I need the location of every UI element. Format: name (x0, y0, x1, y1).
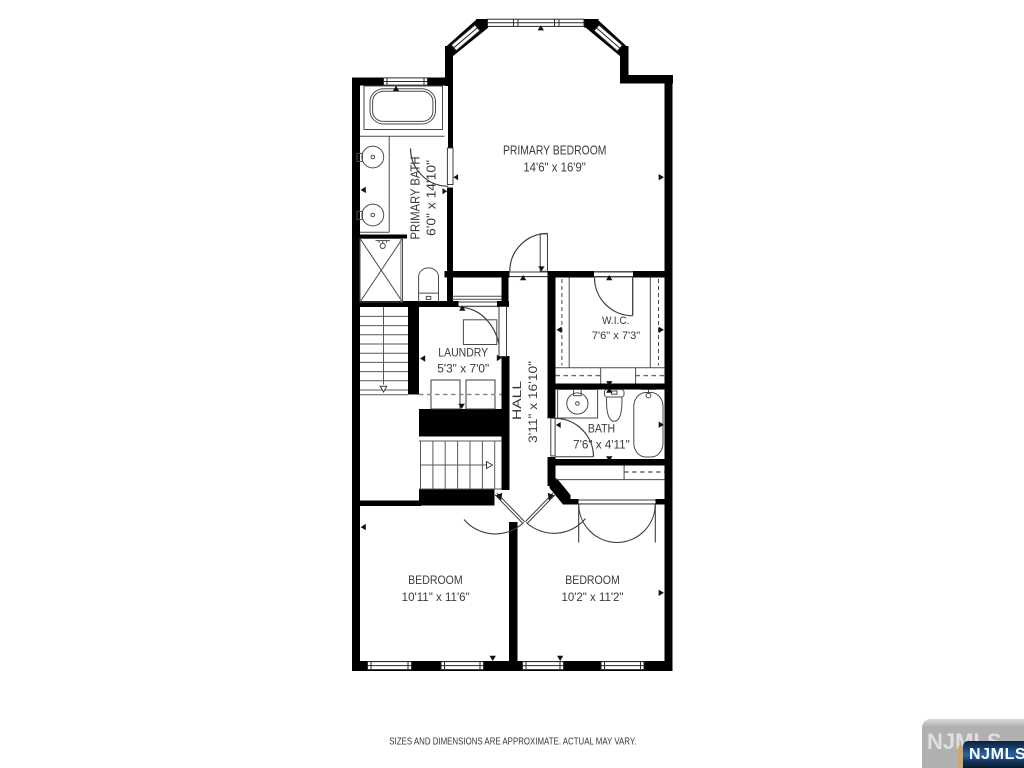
svg-text:3'11" x 16'10": 3'11" x 16'10" (526, 361, 540, 443)
svg-text:SIZES AND DIMENSIONS ARE APPRO: SIZES AND DIMENSIONS ARE APPROXIMATE. AC… (389, 736, 636, 747)
svg-text:BEDROOM: BEDROOM (408, 575, 463, 587)
svg-text:6'0" x 14'10": 6'0" x 14'10" (425, 160, 439, 236)
svg-text:5'3" x 7'0": 5'3" x 7'0" (437, 361, 489, 375)
svg-text:BEDROOM: BEDROOM (565, 575, 620, 587)
svg-text:W.I.C.: W.I.C. (602, 315, 630, 327)
svg-text:HALL: HALL (510, 381, 524, 420)
svg-text:14'6" x 16'9": 14'6" x 16'9" (523, 160, 586, 174)
svg-text:PRIMARY BEDROOM: PRIMARY BEDROOM (503, 143, 607, 158)
svg-text:7'6" x 7'3": 7'6" x 7'3" (592, 330, 640, 342)
svg-text:7'6" x 4'11": 7'6" x 4'11" (573, 440, 630, 452)
svg-text:LAUNDRY: LAUNDRY (438, 345, 488, 359)
svg-text:10'11" x 11'6": 10'11" x 11'6" (402, 592, 470, 604)
svg-text:BATH: BATH (588, 424, 615, 436)
svg-text:PRIMARY BATH: PRIMARY BATH (409, 157, 423, 240)
svg-text:10'2" x 11'2": 10'2" x 11'2" (562, 592, 624, 604)
